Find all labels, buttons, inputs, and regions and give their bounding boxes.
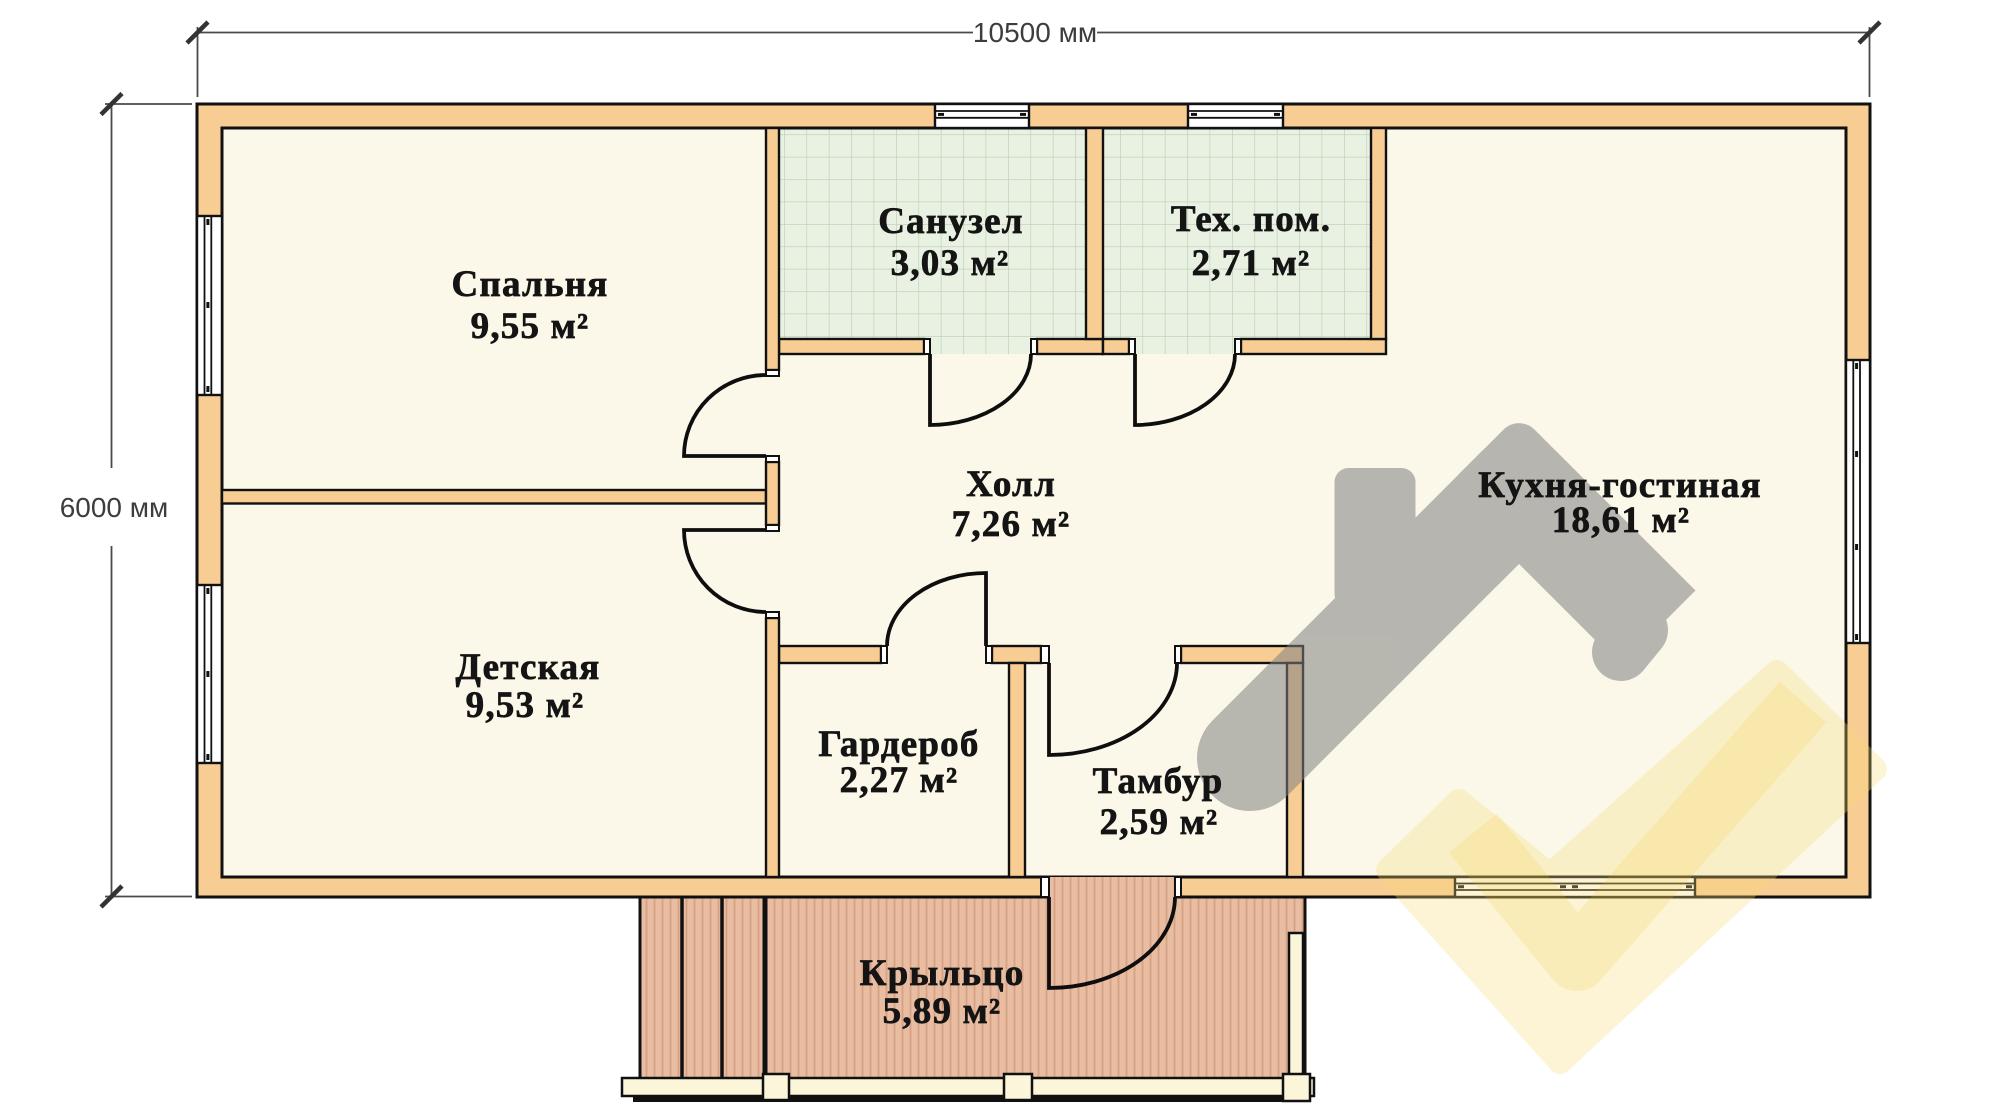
svg-text:2,27 м²: 2,27 м²	[840, 760, 959, 801]
svg-text:9,53 м²: 9,53 м²	[466, 685, 585, 726]
svg-text:Крыльцо: Крыльцо	[860, 953, 1025, 994]
svg-text:18,61 м²: 18,61 м²	[1552, 500, 1690, 541]
svg-text:5,89 м²: 5,89 м²	[883, 991, 1002, 1032]
svg-text:6000 мм: 6000 мм	[60, 492, 169, 523]
svg-text:Гардероб: Гардероб	[818, 724, 979, 765]
svg-text:2,59 м²: 2,59 м²	[1100, 802, 1219, 843]
svg-text:Тех. пом.: Тех. пом.	[1171, 199, 1331, 240]
svg-text:9,55 м²: 9,55 м²	[471, 306, 590, 347]
svg-text:Спальня: Спальня	[452, 264, 609, 305]
svg-text:Тамбур: Тамбур	[1093, 761, 1224, 802]
svg-text:Детская: Детская	[455, 647, 600, 688]
svg-text:Санузел: Санузел	[878, 201, 1024, 242]
svg-text:2,71 м²: 2,71 м²	[1192, 243, 1311, 284]
svg-text:7,26 м²: 7,26 м²	[952, 504, 1071, 545]
svg-text:3,03 м²: 3,03 м²	[891, 243, 1010, 284]
svg-text:Холл: Холл	[966, 464, 1056, 505]
svg-text:10500 мм: 10500 мм	[973, 17, 1097, 48]
